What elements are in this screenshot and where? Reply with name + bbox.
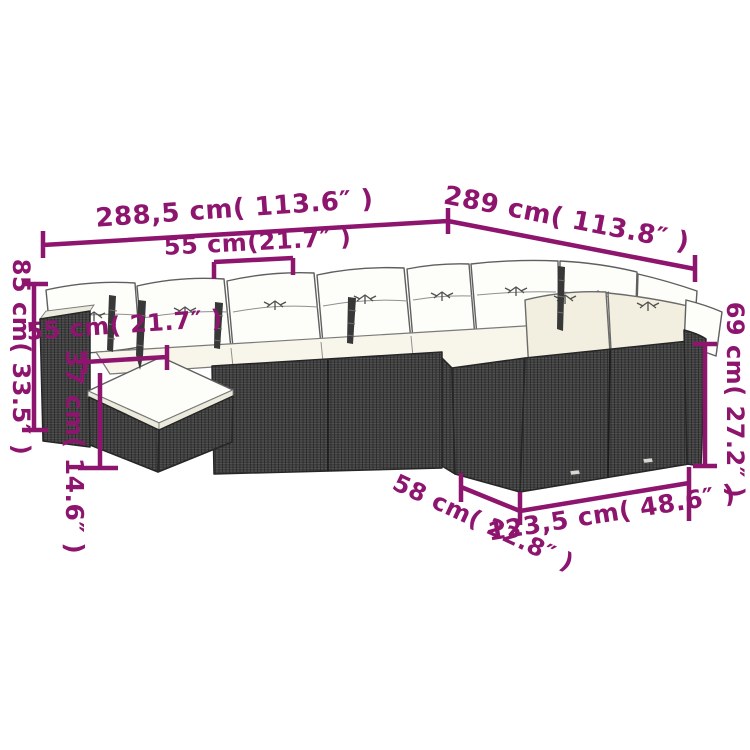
footstool-height-label: 37 cm( 14.6″ ) <box>60 350 89 554</box>
diagram-canvas: 288,5 cm( 113.6″ ) 289 cm( 113.8″ ) 55 c… <box>0 0 750 750</box>
product-dimension-diagram: 288,5 cm( 113.6″ ) 289 cm( 113.8″ ) 55 c… <box>0 0 750 750</box>
overall-height-label: 85 cm( 33.5″ ) <box>7 259 35 456</box>
sofa-illustration <box>40 260 722 492</box>
dimension-seat-width: 55 cm(21.7″ ) <box>163 223 352 279</box>
backrest-height-label: 69 cm( 27.2″ ) <box>721 302 749 499</box>
seat-width-label: 55 cm(21.7″ ) <box>163 223 352 261</box>
